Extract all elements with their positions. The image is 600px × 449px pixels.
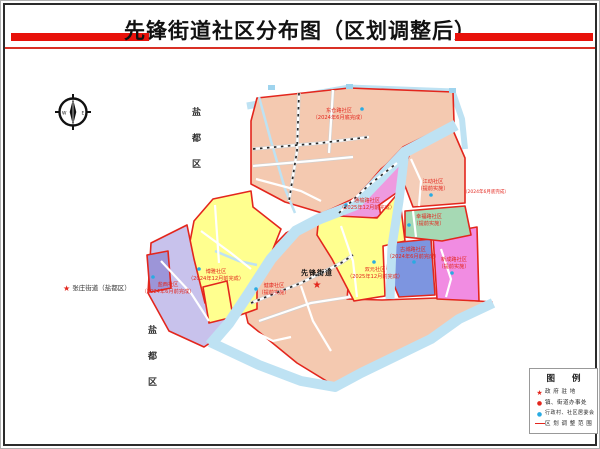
label-jiankang-note: （提前实施） bbox=[258, 288, 289, 296]
legend-row-committee: ● 行政村、社区居委会 bbox=[534, 409, 593, 416]
label-shuangyuan-note: （2025年12月前完成） bbox=[347, 272, 403, 280]
compass-east-letter: E bbox=[82, 111, 85, 117]
legend-label-adjust-range: 区 划 调 整 范 围 bbox=[545, 419, 592, 427]
label-tongyu-name: 通榆路社区 bbox=[354, 196, 380, 204]
label-boya-note: （2024年12月前完成） bbox=[188, 274, 244, 282]
label-dongcang-note: （2024年6月底完成） bbox=[313, 113, 366, 121]
compass-west-letter: W bbox=[62, 111, 67, 117]
label-boya-name: 博雅社区 bbox=[206, 267, 227, 275]
label-xingfu-name: 幸福路社区 bbox=[416, 212, 442, 220]
legend-label-street-office: 镇、街道办事处 bbox=[545, 398, 587, 406]
legend-row-government: ★ 政 府 驻 地 bbox=[534, 388, 593, 395]
legend-title: 图 例 bbox=[534, 372, 593, 384]
legend-row-adjust-range: 区 划 调 整 范 围 bbox=[534, 419, 593, 426]
compass-rose-icon: W E bbox=[55, 94, 91, 130]
legend-row-street-office: ● 镇、街道办事处 bbox=[534, 398, 593, 405]
label-xingfu-note: （提前实施） bbox=[413, 219, 444, 227]
road-completion-note: （2024年6月底完成） bbox=[463, 188, 509, 195]
label-shuangyuan-name: 双元社区 bbox=[365, 265, 386, 273]
street-seat-star-icon: ★ bbox=[313, 280, 322, 291]
map-canvas: W E bbox=[1, 1, 600, 449]
street-seat-label: 先锋街道 bbox=[301, 268, 333, 277]
label-gucheng-name: 古城路社区 bbox=[400, 245, 426, 253]
label-xincheng-name: 新成路社区 bbox=[441, 255, 467, 263]
label-jiankang-name: 健康社区 bbox=[264, 281, 285, 289]
label-xincheng-note: （提前实施） bbox=[438, 262, 469, 270]
label-dongcang-name: 东仓路社区 bbox=[326, 106, 352, 114]
legend-label-government: 政 府 驻 地 bbox=[545, 387, 576, 395]
legend-label-committee: 行政村、社区居委会 bbox=[545, 409, 595, 416]
legend-red-line-icon bbox=[535, 423, 545, 425]
map-page: 先锋街道社区分布图（区划调整后） 盐都区 盐都区 ★ 张庄街道（盐都区） W E bbox=[0, 0, 600, 449]
label-gucheng-note: （2024年6月前完成） bbox=[387, 252, 440, 260]
label-jiangdong-name: 江动社区 bbox=[423, 177, 444, 185]
legend-box: 图 例 ★ 政 府 驻 地 ● 镇、街道办事处 ● 行政村、社区居委会 区 划 … bbox=[529, 368, 598, 434]
legend-blue-dot-icon: ● bbox=[537, 411, 542, 418]
label-yanxi-name: 盐西社区 bbox=[158, 280, 179, 288]
label-tongyu-note: （2025年12月前完成） bbox=[339, 203, 395, 211]
label-jiangdong-note: （提前实施） bbox=[417, 184, 448, 192]
label-yanxi-note: （2024年6月前完成） bbox=[142, 287, 195, 295]
